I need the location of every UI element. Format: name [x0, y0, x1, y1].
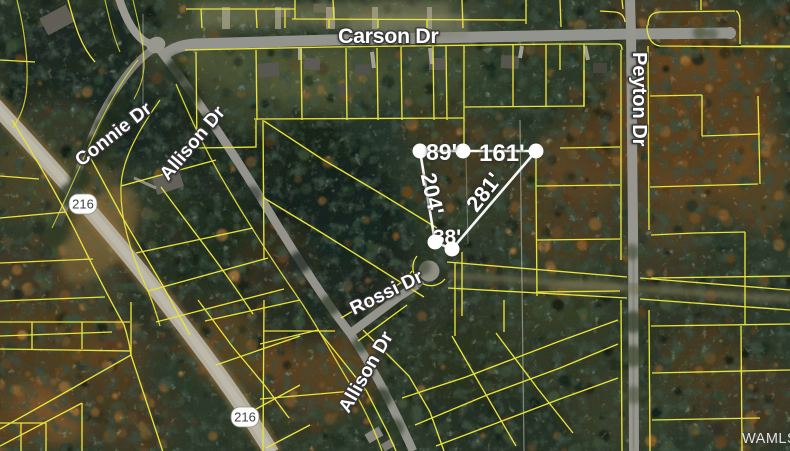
svg-text:216: 216: [234, 410, 256, 425]
svg-text:WAMLS: WAMLS: [742, 431, 790, 447]
svg-text:216: 216: [72, 197, 94, 212]
svg-text:89': 89': [426, 139, 457, 165]
svg-text:161': 161': [479, 140, 525, 167]
svg-text:Carson Dr: Carson Dr: [338, 24, 439, 48]
svg-text:Peyton Dr: Peyton Dr: [628, 52, 650, 147]
